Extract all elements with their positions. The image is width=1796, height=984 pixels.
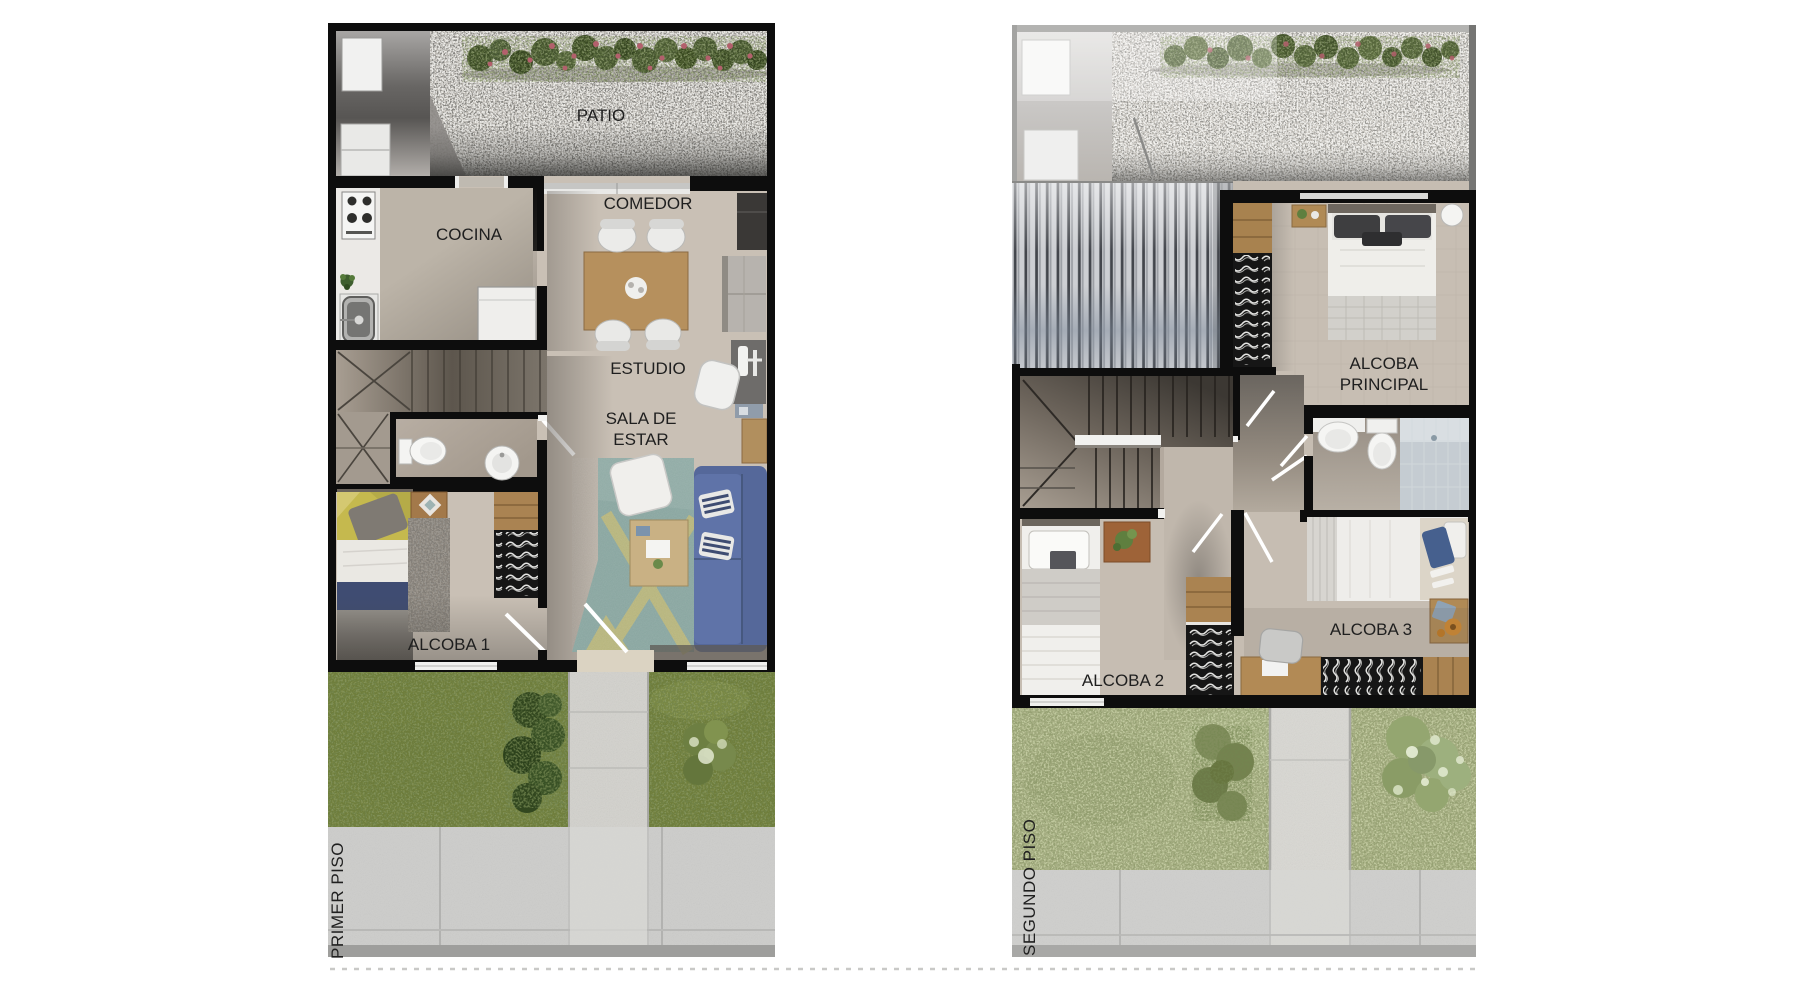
- svg-text:ALCOBA 3: ALCOBA 3: [1330, 620, 1412, 639]
- svg-text:COCINA: COCINA: [436, 225, 503, 244]
- svg-text:ALCOBA: ALCOBA: [1350, 354, 1420, 373]
- svg-text:COMEDOR: COMEDOR: [604, 194, 693, 213]
- svg-text:SEGUNDO PISO: SEGUNDO PISO: [1020, 819, 1039, 956]
- svg-text:PRINCIPAL: PRINCIPAL: [1340, 375, 1429, 394]
- svg-text:PRIMER PISO: PRIMER PISO: [328, 842, 347, 959]
- svg-text:PATIO: PATIO: [577, 106, 626, 125]
- svg-text:ESTAR: ESTAR: [613, 430, 668, 449]
- svg-text:ALCOBA 2: ALCOBA 2: [1082, 671, 1164, 690]
- svg-text:ALCOBA 1: ALCOBA 1: [408, 635, 490, 654]
- svg-text:SALA DE: SALA DE: [606, 409, 677, 428]
- svg-text:ESTUDIO: ESTUDIO: [610, 359, 686, 378]
